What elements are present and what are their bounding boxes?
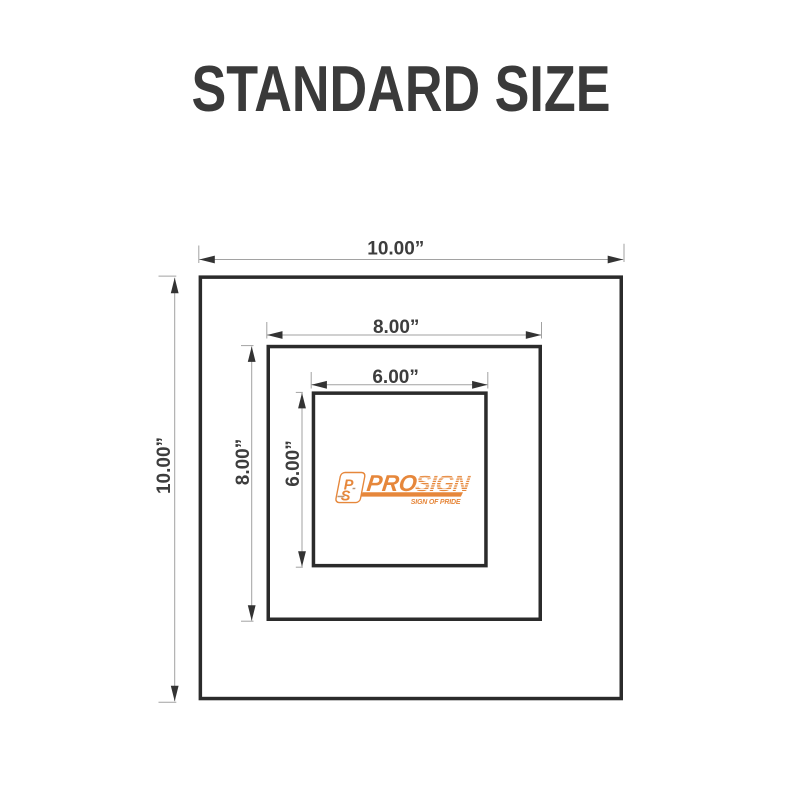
svg-text:6.00”: 6.00” [372, 367, 418, 388]
svg-text:10.00”: 10.00” [154, 437, 175, 494]
svg-text:6.00”: 6.00” [283, 440, 304, 486]
svg-text:PRO: PRO [365, 470, 418, 496]
svg-text:SIGN OF PRIDE: SIGN OF PRIDE [411, 499, 461, 506]
svg-text:SIGN: SIGN [414, 470, 473, 496]
svg-text:8.00”: 8.00” [373, 317, 419, 338]
svg-text:8.00”: 8.00” [233, 439, 254, 485]
svg-text:10.00”: 10.00” [367, 238, 424, 259]
